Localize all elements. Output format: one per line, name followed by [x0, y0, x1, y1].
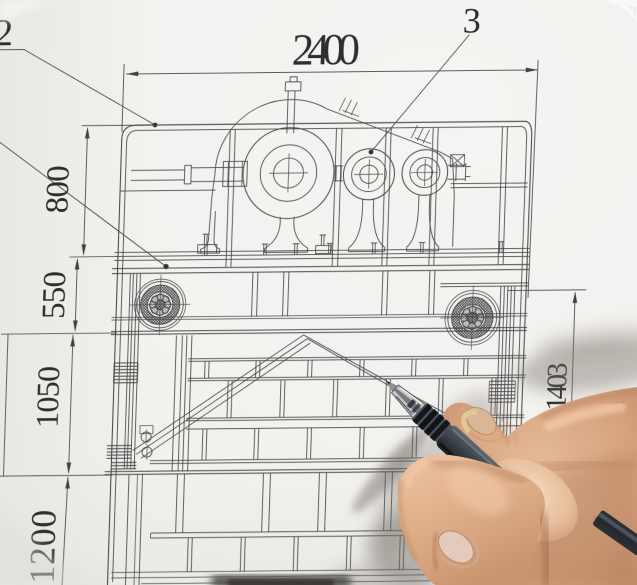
svg-text:800: 800 — [39, 165, 77, 213]
svg-text:550: 550 — [36, 271, 74, 319]
svg-text:3: 3 — [462, 0, 481, 40]
svg-text:2400: 2400 — [291, 25, 361, 75]
svg-text:1050: 1050 — [29, 366, 67, 428]
